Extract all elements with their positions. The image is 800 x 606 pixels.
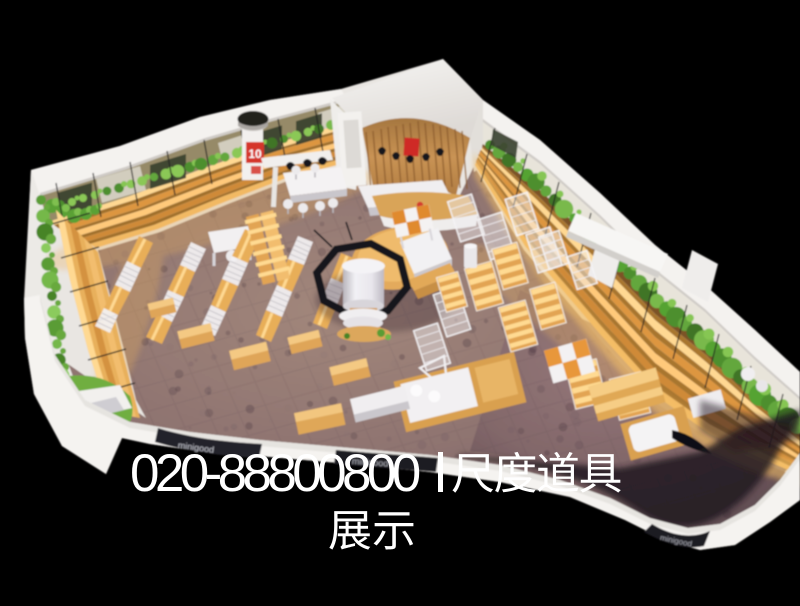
svg-text:020-88800800: 020-88800800 <box>130 444 420 503</box>
svg-text:10: 10 <box>248 147 262 161</box>
